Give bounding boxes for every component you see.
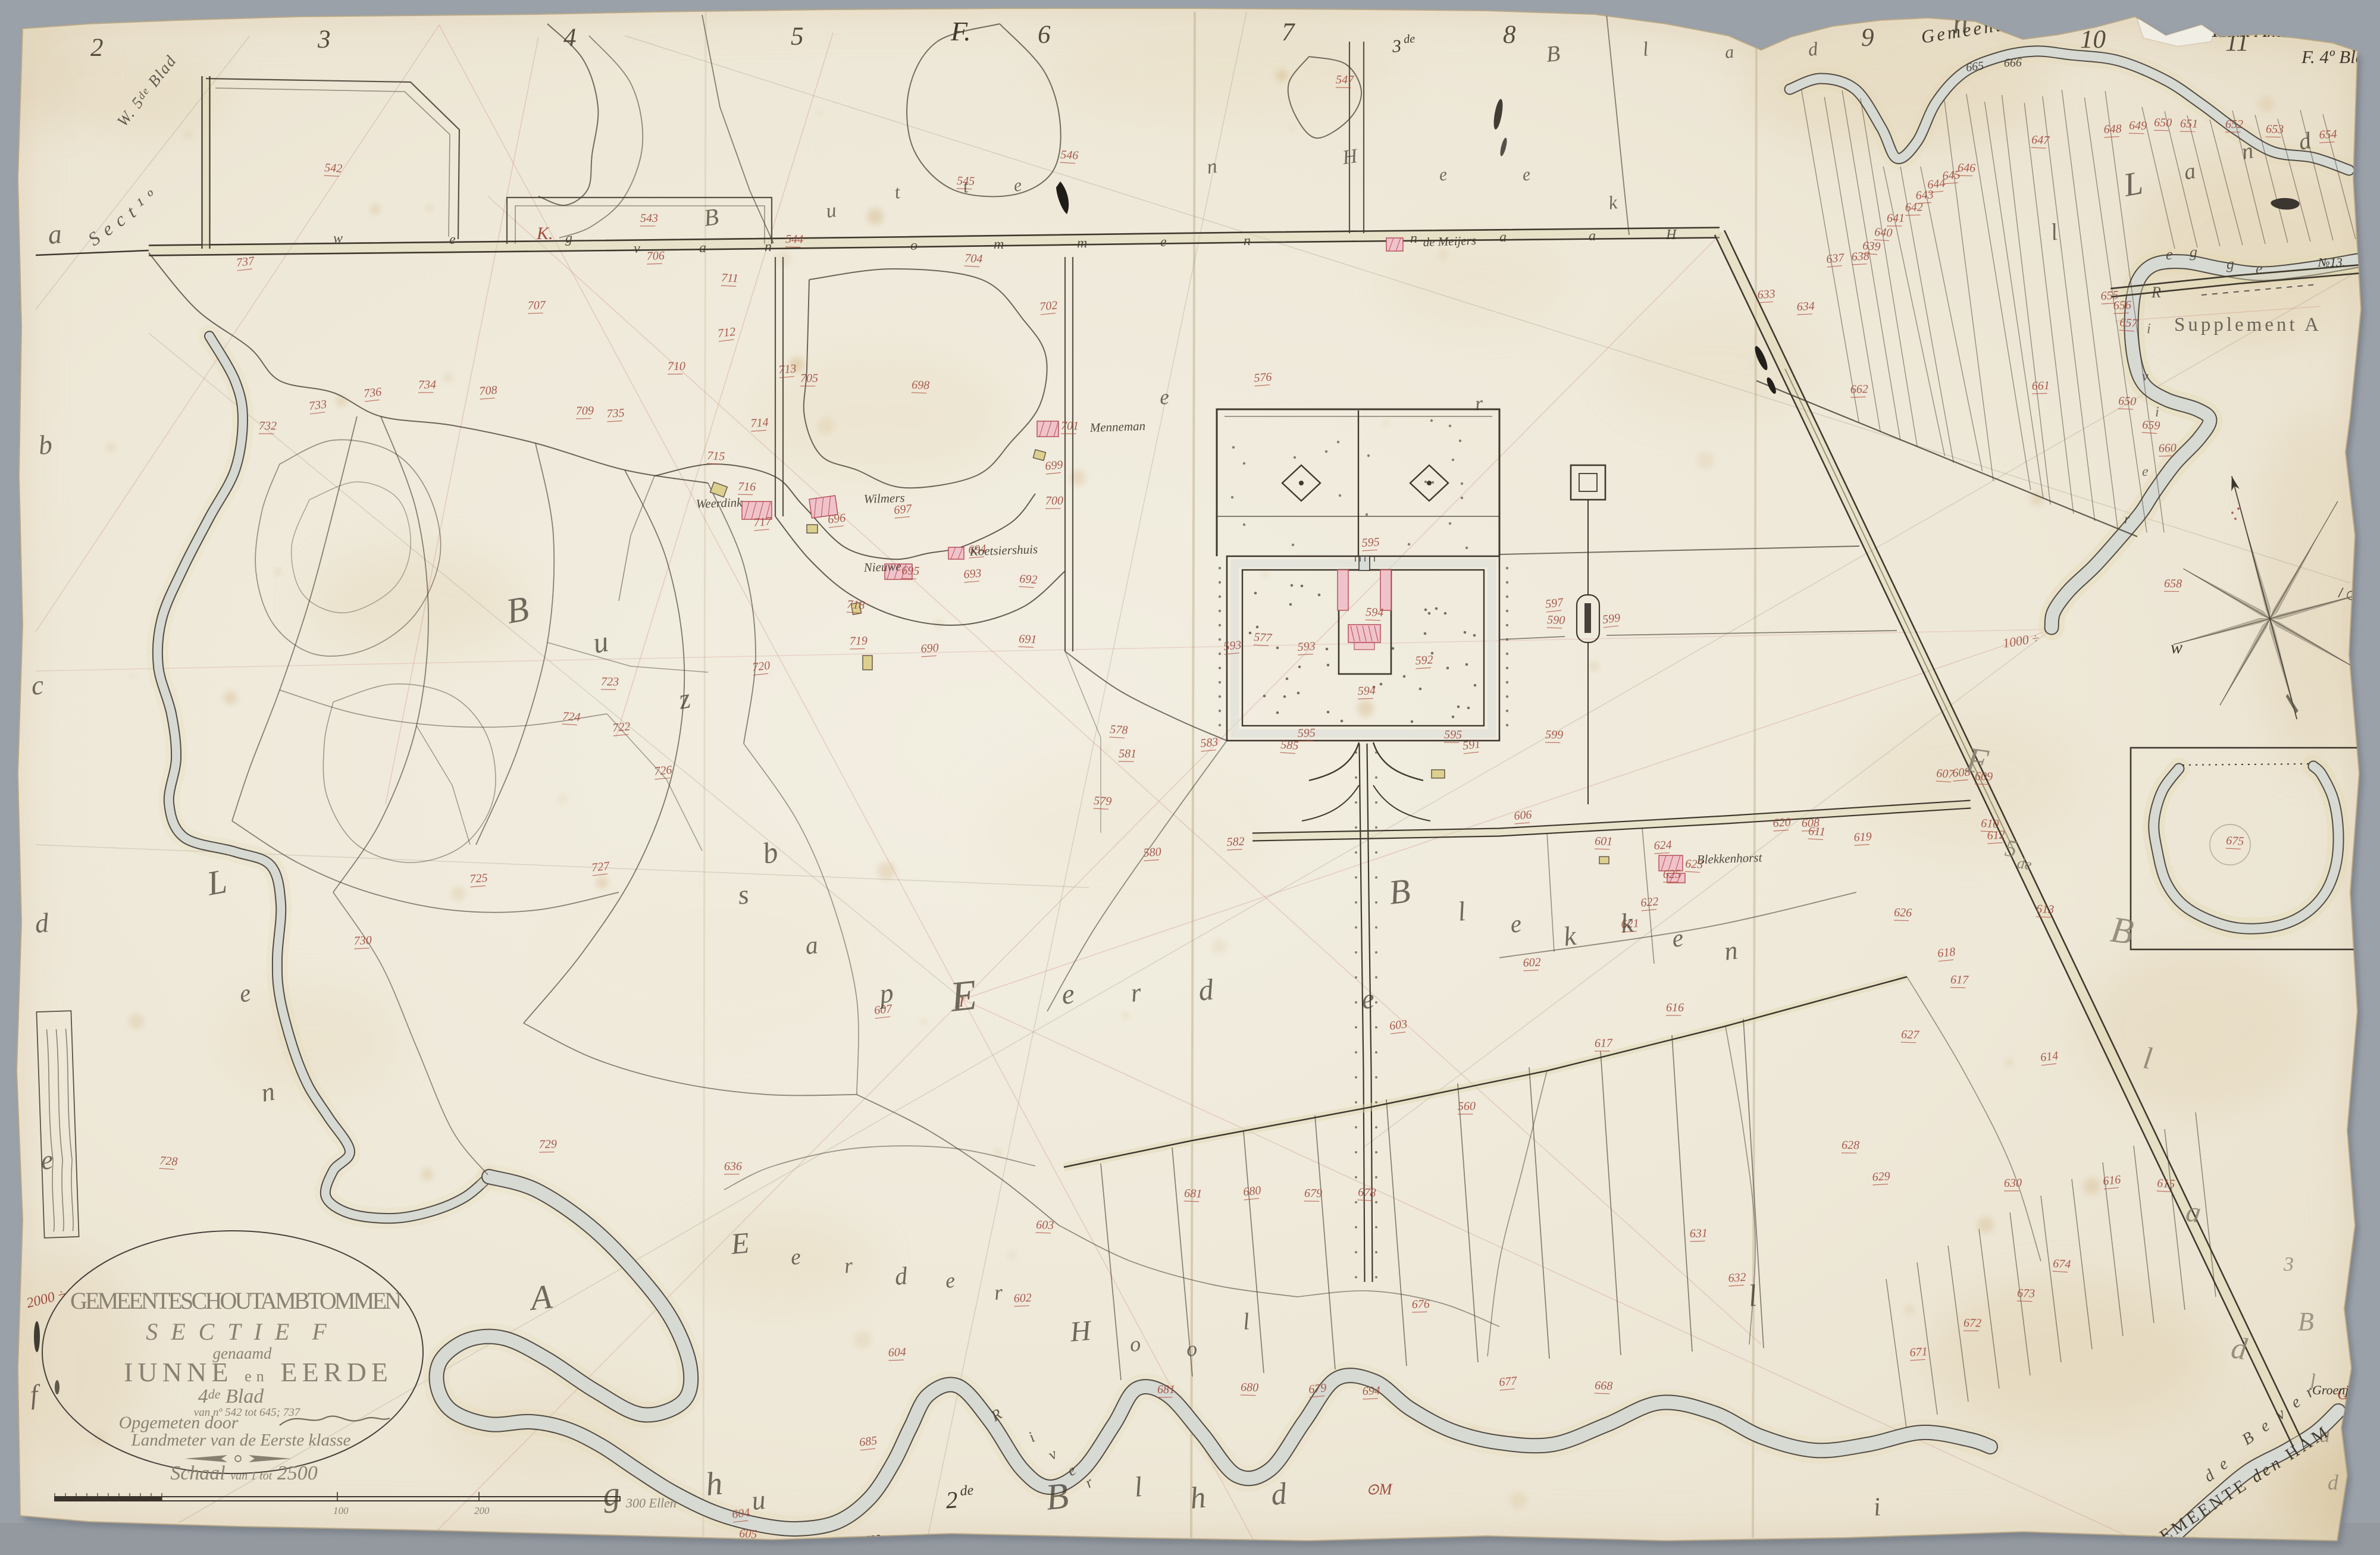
svg-text:613: 613 [2036,902,2055,916]
svg-text:725: 725 [469,871,488,886]
svg-text:o: o [1129,1332,1141,1356]
svg-text:629: 629 [1872,1170,1890,1184]
svg-text:619: 619 [1853,830,1872,844]
svg-text:3: 3 [317,26,331,54]
svg-text:672: 672 [1963,1316,1981,1330]
svg-text:612: 612 [1987,828,2005,842]
svg-text:e: e [1160,234,1167,250]
svg-text:714: 714 [750,416,769,430]
svg-text:650: 650 [2118,394,2137,408]
svg-text:F.: F. [950,16,971,46]
svg-text:691: 691 [1019,632,1037,646]
svg-text:B: B [1044,1475,1070,1518]
svg-text:615: 615 [2157,1177,2175,1191]
svg-text:661: 661 [2032,379,2050,393]
svg-text:647: 647 [2031,133,2050,147]
svg-text:651: 651 [2180,117,2198,130]
svg-text:674: 674 [2053,1257,2071,1271]
svg-text:737: 737 [236,254,255,269]
svg-text:634: 634 [1796,300,1815,313]
svg-text:668: 668 [1595,1379,1613,1393]
svg-text:K.: K. [536,224,553,243]
svg-text:618: 618 [1937,945,1956,960]
svg-text:599: 599 [1602,612,1621,626]
svg-text:728: 728 [159,1154,178,1168]
svg-text:704: 704 [964,252,983,266]
svg-text:706: 706 [646,249,665,263]
svg-text:735: 735 [606,406,625,421]
svg-text:6: 6 [1038,21,1051,49]
svg-text:4de Blad: 4de Blad [198,1385,264,1407]
svg-text:646: 646 [1958,161,1976,175]
svg-text:577: 577 [1254,631,1273,645]
svg-text:560: 560 [1458,1100,1476,1113]
svg-text:679: 679 [1304,1187,1322,1200]
svg-text:r: r [2124,512,2130,527]
svg-text:de: de [2016,854,2033,873]
svg-text:e: e [449,232,456,247]
svg-text:e: e [2166,246,2173,263]
svg-text:685: 685 [859,1434,878,1449]
svg-text:a: a [1499,230,1507,245]
svg-text:603: 603 [1389,1018,1408,1033]
svg-text:o: o [910,238,917,253]
svg-text:604: 604 [888,1346,906,1359]
svg-text:de: de [1403,32,1415,46]
svg-text:de: de [960,1482,975,1499]
svg-text:730: 730 [353,934,372,948]
svg-text:542: 542 [324,161,343,175]
svg-text:w: w [2171,638,2182,657]
svg-text:637: 637 [1825,251,1845,266]
svg-text:680: 680 [1242,1184,1261,1199]
svg-text:i: i [2155,405,2159,420]
svg-text:n: n [1410,231,1417,246]
svg-text:693: 693 [963,567,982,581]
svg-text:650: 650 [2154,116,2172,130]
svg-text:7: 7 [1282,18,1295,46]
svg-text:543: 543 [640,212,658,225]
svg-text:681: 681 [1157,1383,1175,1396]
svg-text:n: n [1244,233,1251,249]
svg-text:736: 736 [363,385,382,400]
svg-text:e: e [2142,464,2149,479]
svg-text:666: 666 [2004,56,2022,70]
svg-text:622: 622 [1640,895,1659,910]
svg-text:717: 717 [753,515,772,529]
svg-text:732: 732 [259,419,277,432]
svg-text:GEMEENTESCHOUTAMBTOMMEN: GEMEENTESCHOUTAMBTOMMEN [70,1287,403,1314]
svg-text:695: 695 [901,564,920,578]
svg-text:591: 591 [1462,738,1481,753]
svg-text:100: 100 [333,1505,349,1516]
svg-text:711: 711 [721,271,739,285]
svg-text:718: 718 [847,598,865,612]
svg-text:733: 733 [308,397,327,412]
svg-text:659: 659 [2142,418,2160,432]
svg-text:4: 4 [563,24,577,52]
svg-text:№13.: №13. [2318,255,2345,269]
svg-text:626: 626 [1894,906,1912,920]
svg-text:581: 581 [1119,747,1136,760]
svg-text:715: 715 [707,449,725,463]
svg-text:617: 617 [1950,973,1969,987]
svg-text:5: 5 [791,23,804,51]
svg-text:595: 595 [1361,535,1380,550]
svg-text:722: 722 [612,720,631,735]
svg-text:665: 665 [1965,59,1984,74]
svg-text:9: 9 [1861,24,1874,52]
svg-text:639: 639 [1862,239,1881,253]
svg-text:707: 707 [527,299,546,312]
svg-text:⊙M: ⊙M [1366,1481,1393,1498]
svg-text:b: b [37,429,53,460]
svg-text:734: 734 [418,378,436,391]
svg-text:632: 632 [1728,1271,1746,1285]
svg-text:593: 593 [1223,638,1242,653]
svg-text:649: 649 [2129,119,2147,133]
svg-text:601: 601 [1595,835,1613,848]
svg-text:Nieuwe: Nieuwe [863,559,901,575]
svg-text:699: 699 [1044,458,1063,473]
svg-text:727: 727 [591,860,610,874]
svg-text:604: 604 [731,1506,750,1521]
svg-text:582: 582 [1226,835,1245,849]
svg-text:673: 673 [2017,1287,2035,1300]
svg-text:583: 583 [1200,735,1219,750]
svg-text:624: 624 [1654,838,1672,852]
svg-text:8: 8 [1503,21,1516,49]
svg-text:657: 657 [2119,316,2138,330]
svg-text:705: 705 [800,372,818,385]
svg-text:653: 653 [2266,123,2284,136]
svg-text:616: 616 [1666,1001,1684,1014]
svg-text:3: 3 [2283,1253,2294,1275]
svg-text:576: 576 [1254,371,1273,385]
svg-text:300 Ellen: 300 Ellen [625,1496,677,1510]
svg-text:a: a [1589,228,1596,244]
svg-text:723: 723 [601,675,619,688]
svg-text:Landmeter van de Eerste klasse: Landmeter van de Eerste klasse [131,1431,351,1450]
svg-text:696: 696 [827,511,846,526]
svg-text:630: 630 [2004,1177,2022,1190]
svg-text:590: 590 [1547,613,1565,627]
svg-text:720: 720 [751,659,771,674]
svg-text:606: 606 [1514,808,1533,823]
svg-text:641: 641 [1887,212,1905,225]
svg-text:599: 599 [1545,728,1563,742]
svg-text:676: 676 [1412,1297,1430,1311]
svg-text:580: 580 [1143,845,1161,860]
svg-text:585: 585 [1280,738,1299,753]
svg-text:594: 594 [1357,684,1376,698]
svg-text:R: R [2151,284,2161,301]
svg-text:o: o [1185,1337,1198,1361]
svg-text:S E C T I E F: S E C T I E F [146,1318,330,1345]
svg-text:640: 640 [1874,225,1893,240]
svg-text:g: g [565,231,572,246]
svg-text:701: 701 [1061,419,1079,432]
svg-text:603: 603 [1036,1218,1054,1232]
svg-text:3: 3 [1391,36,1402,57]
svg-text:625: 625 [1663,867,1681,881]
svg-text:708: 708 [479,384,498,398]
svg-text:656: 656 [2113,299,2131,312]
svg-text:m: m [1077,236,1087,251]
svg-text:2: 2 [945,1486,959,1513]
svg-text:m: m [994,237,1004,252]
svg-text:729: 729 [539,1137,557,1151]
svg-text:592: 592 [1415,653,1433,667]
svg-text:595: 595 [1297,726,1316,740]
svg-text:709: 709 [576,404,594,418]
svg-text:594: 594 [1366,606,1384,619]
svg-text:e: e [2256,260,2263,277]
svg-text:633: 633 [1757,287,1775,302]
svg-text:710: 710 [668,360,685,373]
svg-text:690: 690 [920,641,939,656]
svg-text:620: 620 [1773,816,1791,830]
svg-text:g: g [2226,255,2234,272]
svg-text:H: H [1665,227,1677,243]
svg-text:662: 662 [1850,383,1868,396]
svg-text:B: B [2298,1307,2314,1336]
svg-text:724: 724 [562,710,581,724]
svg-text:716: 716 [738,480,756,494]
svg-text:de Meijers: de Meijers [1423,233,1476,249]
svg-text:627: 627 [1901,1028,1920,1042]
svg-text:658: 658 [2164,577,2182,591]
svg-text:642: 642 [1905,200,1924,214]
svg-text:547: 547 [1336,73,1354,87]
svg-text:654: 654 [2319,127,2337,142]
svg-text:602: 602 [1523,955,1541,970]
svg-text:648: 648 [2103,122,2122,136]
svg-text:d: d [2328,1471,2339,1494]
svg-text:H: H [1068,1315,1093,1348]
svg-text:631: 631 [1689,1227,1708,1240]
svg-text:v: v [2142,369,2149,384]
svg-text:660: 660 [2158,441,2177,455]
svg-text:692: 692 [1019,572,1038,587]
svg-text:593: 593 [1297,639,1316,654]
svg-text:g: g [2190,243,2197,261]
svg-text:10: 10 [2080,26,2106,54]
svg-text:614: 614 [2040,1049,2059,1064]
svg-text:595: 595 [1444,728,1462,741]
svg-text:694: 694 [1362,1384,1380,1398]
svg-text:597: 597 [1545,595,1564,610]
svg-text:546: 546 [1060,148,1079,162]
svg-text:2: 2 [90,34,104,62]
svg-text:675: 675 [2226,834,2244,848]
svg-text:680: 680 [1241,1381,1259,1394]
svg-text:616: 616 [2102,1173,2121,1188]
svg-text:E: E [947,971,979,1021]
svg-text:678: 678 [1358,1186,1376,1200]
svg-text:677: 677 [1498,1374,1518,1389]
svg-text:579: 579 [1094,794,1112,808]
svg-text:E: E [729,1226,750,1261]
svg-text:200: 200 [474,1505,490,1516]
svg-text:n: n [765,239,772,255]
svg-text:712: 712 [717,325,736,340]
svg-text:726: 726 [653,763,672,778]
svg-text:602: 602 [1013,1291,1032,1305]
svg-text:608: 608 [1802,816,1820,830]
svg-text:Koetsiershuis: Koetsiershuis [969,542,1038,559]
svg-text:671: 671 [1909,1345,1928,1359]
svg-text:652: 652 [2225,118,2243,131]
svg-text:w: w [333,231,343,246]
svg-text:636: 636 [724,1160,742,1173]
svg-text:681: 681 [1184,1187,1202,1200]
svg-text:702: 702 [1039,299,1058,313]
svg-text:719: 719 [850,634,868,648]
svg-text:a: a [46,218,62,250]
svg-text:Wilmers: Wilmers [863,491,905,506]
svg-text:Groenj.: Groenj. [2312,1382,2352,1397]
svg-text:679: 679 [1308,1381,1327,1396]
svg-text:700: 700 [1045,494,1063,507]
svg-text:617: 617 [1595,1037,1613,1050]
svg-text:Blekkenhorst: Blekkenhorst [1696,850,1763,867]
svg-text:i: i [2147,321,2151,337]
svg-text:B: B [1545,41,1561,67]
svg-text:Supplement A: Supplement A [2174,314,2322,336]
svg-text:578: 578 [1110,723,1128,737]
svg-text:a: a [699,240,706,256]
svg-text:628: 628 [1842,1139,1859,1152]
svg-text:v: v [634,241,640,256]
svg-text:698: 698 [912,378,930,392]
svg-text:Menneman: Menneman [1089,419,1145,435]
svg-text:Weerdink: Weerdink [696,495,743,511]
svg-text:713: 713 [778,362,797,377]
svg-text:Opgemeten door: Opgemeten door [119,1413,239,1432]
svg-text:544: 544 [785,233,803,246]
